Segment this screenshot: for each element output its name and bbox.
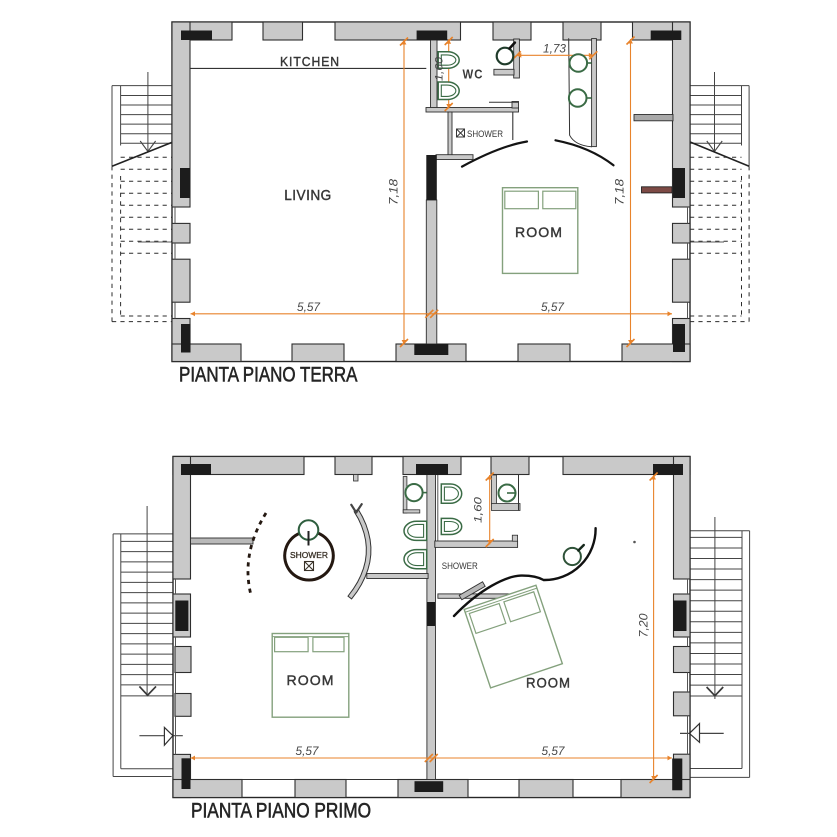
- svg-text:ROOM: ROOM: [287, 673, 335, 688]
- svg-text:WC: WC: [463, 67, 484, 82]
- svg-text:PIANTA PIANO TERRA: PIANTA PIANO TERRA: [179, 363, 358, 387]
- svg-text:7,18: 7,18: [387, 179, 401, 205]
- svg-text:1,60: 1,60: [434, 56, 446, 81]
- svg-text:1,60: 1,60: [473, 496, 485, 523]
- svg-text:SHOWER: SHOWER: [290, 550, 328, 560]
- svg-text:5,57: 5,57: [542, 744, 566, 758]
- svg-text:5,57: 5,57: [541, 300, 565, 314]
- svg-text:ROOM: ROOM: [526, 676, 571, 691]
- svg-text:7,20: 7,20: [637, 613, 651, 637]
- svg-text:ROOM: ROOM: [515, 225, 563, 240]
- svg-text:SHOWER: SHOWER: [467, 129, 503, 140]
- svg-text:5,57: 5,57: [296, 744, 320, 758]
- svg-text:7,18: 7,18: [613, 179, 627, 205]
- svg-text:KITCHEN: KITCHEN: [280, 54, 340, 69]
- svg-text:SHOWER: SHOWER: [442, 561, 478, 572]
- svg-text:5,57: 5,57: [297, 300, 321, 314]
- svg-text:PIANTA PIANO PRIMO: PIANTA PIANO PRIMO: [191, 799, 371, 823]
- svg-text:1,73: 1,73: [543, 41, 566, 55]
- svg-text:LIVING: LIVING: [284, 188, 332, 204]
